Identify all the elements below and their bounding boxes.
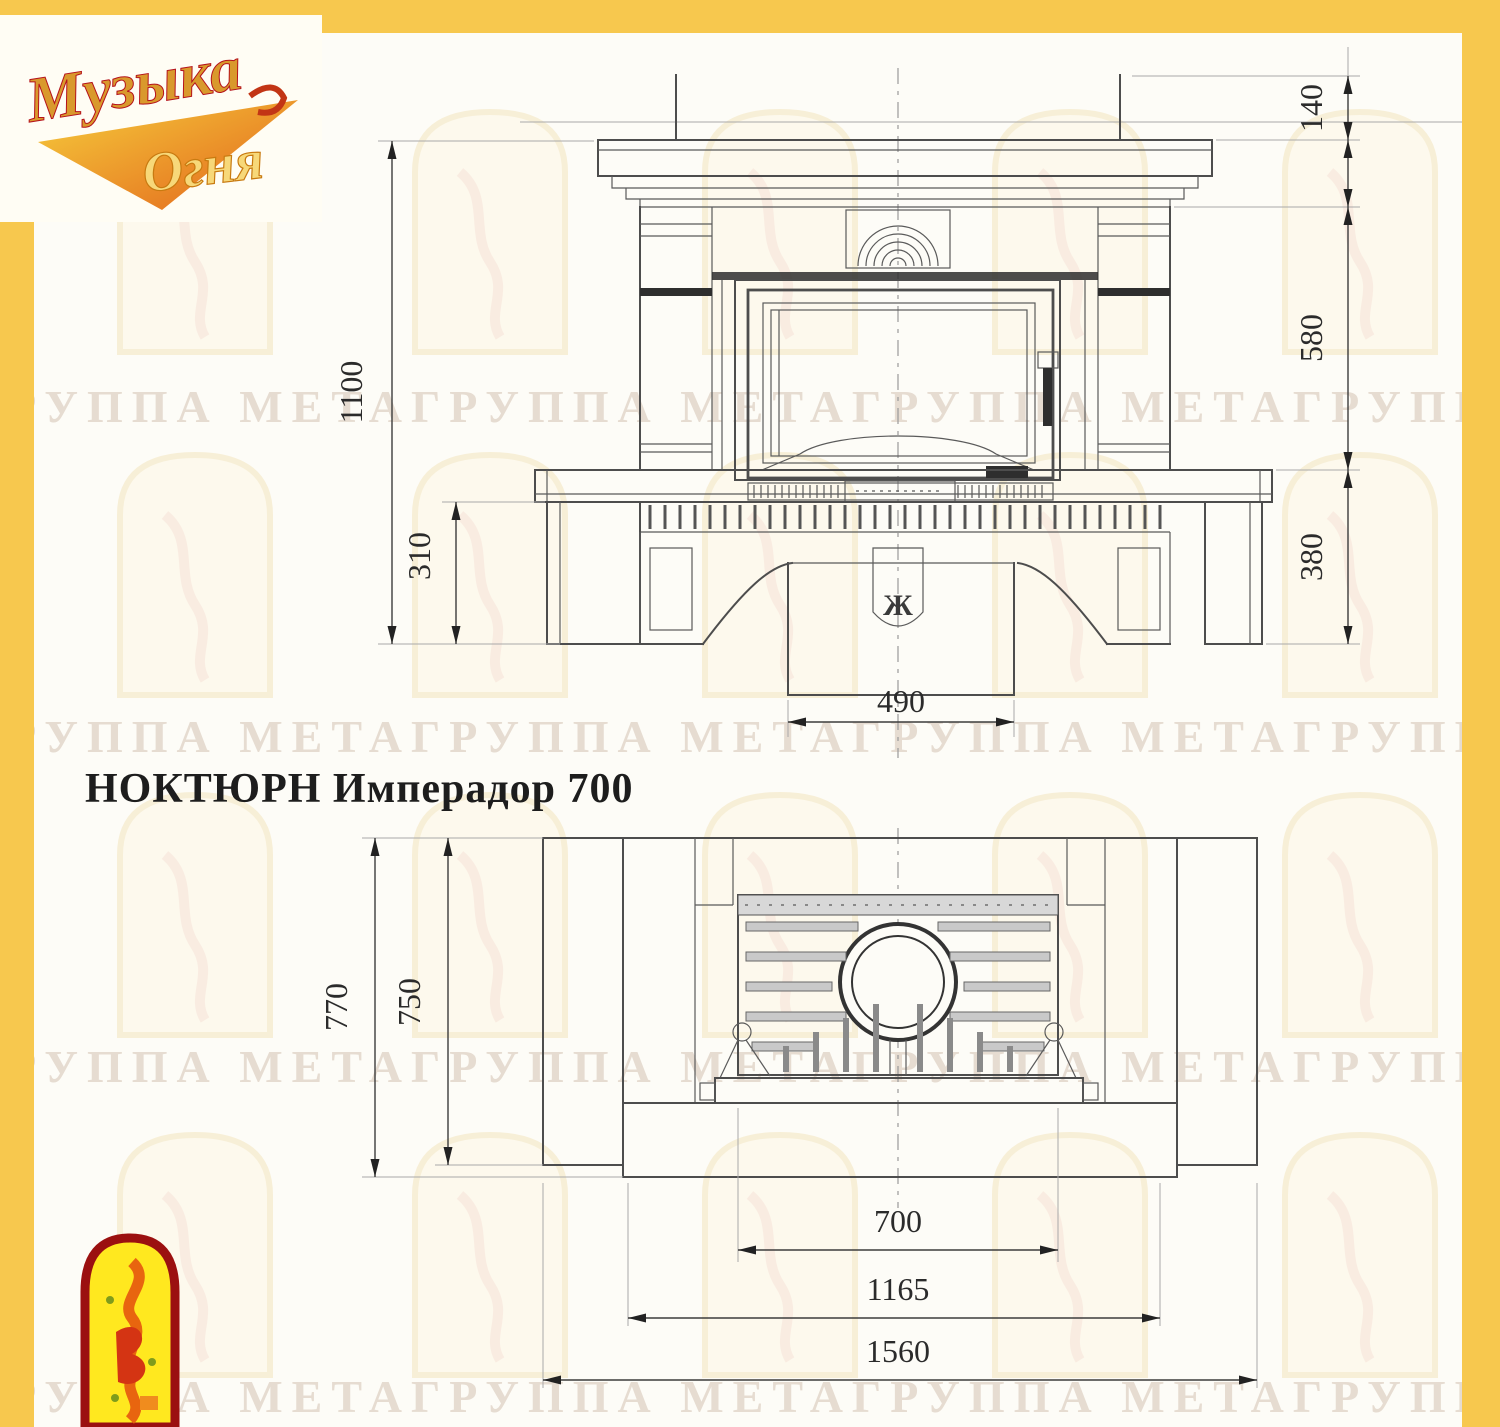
fire-dancer-emblem (85, 1238, 175, 1427)
dim-label-310: 310 (401, 532, 437, 580)
dim-label-380: 380 (1293, 533, 1329, 581)
flue-collar-outer (840, 924, 956, 1040)
plan-right-column (1177, 838, 1257, 1165)
dim-label-1560: 1560 (866, 1333, 930, 1369)
bench-shelf (535, 470, 1272, 502)
dim-label-140: 140 (1293, 84, 1329, 132)
watermark-text: ГРУППА МЕТАГРУППА МЕТАГРУППА МЕТАГРУППА … (0, 1371, 1500, 1422)
door-latch (986, 466, 1028, 478)
watermark-text: ГРУППА МЕТАГРУППА МЕТАГРУППА МЕТАГРУППА … (0, 381, 1500, 432)
watermark-text: ГРУППА МЕТАГРУППА МЕТАГРУППА МЕТАГРУППА … (0, 711, 1500, 762)
page-border-left (0, 33, 34, 1427)
dim-label-580: 580 (1293, 314, 1329, 362)
watermark-text: ГРУППА МЕТАГРУППА МЕТАГРУППА МЕТАГРУППА … (0, 1041, 1500, 1092)
dim-label-1165: 1165 (867, 1271, 930, 1307)
brand-logo: Музыка Огня (0, 15, 322, 222)
dim-label-750: 750 (391, 978, 427, 1026)
technical-drawing-canvas: ГРУППА МЕТАГРУППА МЕТАГРУППА МЕТАГРУППА … (0, 0, 1500, 1427)
dim-label-490: 490 (877, 683, 925, 719)
drawing-title: НОКТЮРН Имперадор 700 (85, 766, 634, 812)
keystone-glyph: Ж (883, 589, 913, 622)
plan-view (543, 828, 1257, 1208)
dim-label-700: 700 (874, 1203, 922, 1239)
door-handle (1043, 368, 1052, 426)
dim-label-1100: 1100 (333, 361, 369, 424)
page-border-right (1462, 0, 1500, 1427)
base-and-legs: Ж (547, 502, 1262, 695)
drawing-page: ГРУППА МЕТАГРУППА МЕТАГРУППА МЕТАГРУППА … (0, 0, 1500, 1427)
dim-label-770: 770 (318, 983, 354, 1031)
